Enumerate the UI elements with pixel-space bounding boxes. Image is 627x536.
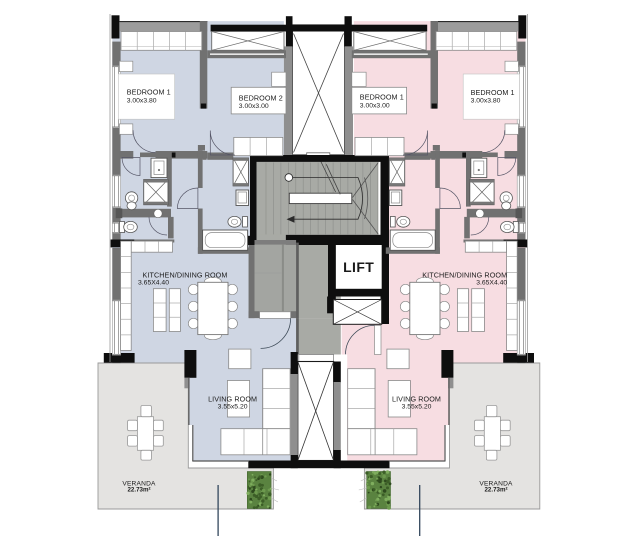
svg-text:3.65X4.40: 3.65X4.40	[138, 279, 169, 286]
svg-text:3.55x5.20: 3.55x5.20	[218, 404, 248, 411]
svg-text:KITCHEN/DINING ROOM: KITCHEN/DINING ROOM	[143, 270, 228, 279]
svg-text:KITCHEN/DINING ROOM: KITCHEN/DINING ROOM	[422, 270, 507, 279]
svg-text:BEDROOM 1: BEDROOM 1	[471, 88, 515, 97]
svg-text:3.00x3.00: 3.00x3.00	[239, 103, 269, 110]
svg-text:LIFT: LIFT	[343, 259, 374, 275]
svg-text:3.65X4.40: 3.65X4.40	[476, 279, 507, 286]
svg-text:BEDROOM 1: BEDROOM 1	[127, 88, 171, 97]
svg-text:3.00x3.80: 3.00x3.80	[471, 98, 501, 105]
svg-text:BEDROOM 1: BEDROOM 1	[360, 93, 404, 102]
svg-text:LIVING ROOM: LIVING ROOM	[208, 394, 257, 403]
svg-text:3.55x5.20: 3.55x5.20	[402, 404, 432, 411]
svg-text:3.00x3.00: 3.00x3.00	[360, 102, 390, 109]
svg-text:LIVING ROOM: LIVING ROOM	[392, 394, 441, 403]
svg-text:3.00x3.80: 3.00x3.80	[127, 97, 157, 104]
svg-text:22.73m²: 22.73m²	[127, 487, 150, 494]
svg-text:22.73m²: 22.73m²	[484, 487, 507, 494]
svg-text:BEDROOM 2: BEDROOM 2	[239, 93, 283, 102]
